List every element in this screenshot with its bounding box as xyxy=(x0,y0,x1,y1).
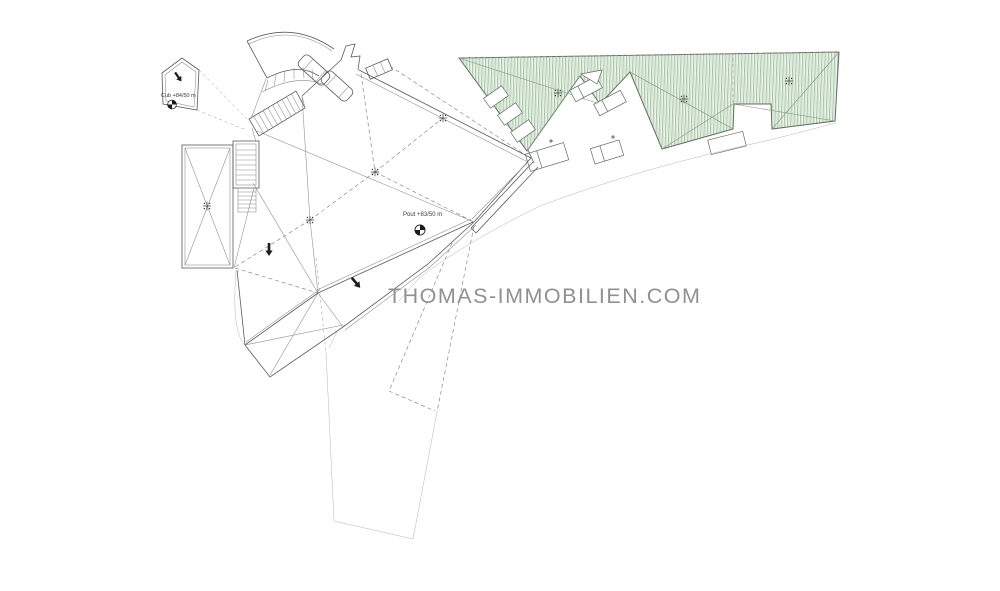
watermark-text: THOMAS-IMMOBILIEN.COM xyxy=(388,284,701,308)
roof-plan-drawing: Cub +84/50 m Pout +83/50 m THOMAS-IMMOBI… xyxy=(0,0,1000,591)
benchmark-icon xyxy=(168,100,177,109)
survey-cross-icon xyxy=(306,216,314,224)
parked-cars xyxy=(296,53,354,103)
pentagon-annex: Cub +84/50 m xyxy=(161,58,248,130)
garage-roof-rectangle xyxy=(182,145,233,268)
roof-symbols: Pout +83/50 m xyxy=(265,114,447,290)
roof-plan-canvas: Cub +84/50 m Pout +83/50 m THOMAS-IMMOBI… xyxy=(0,0,1000,591)
survey-cross-icon xyxy=(554,89,562,97)
survey-cross-icon xyxy=(680,95,688,103)
survey-cross-icon xyxy=(203,202,211,210)
chimney-block xyxy=(366,59,393,79)
pout-annotation-label: Pout +83/50 m xyxy=(403,212,442,218)
survey-cross-icon xyxy=(371,168,379,176)
slope-arrow-icon xyxy=(173,71,184,84)
benchmark-icon xyxy=(415,225,425,235)
survey-cross-icon xyxy=(439,114,447,122)
survey-cross-icon xyxy=(785,77,793,85)
green-terrace-area xyxy=(459,52,839,151)
cub-annotation-label: Cub +84/50 m xyxy=(161,93,196,99)
slope-arrow-icon xyxy=(265,243,272,256)
stairs xyxy=(233,91,305,212)
planter-boxes xyxy=(525,131,746,171)
lower-wing-outline xyxy=(316,226,474,539)
